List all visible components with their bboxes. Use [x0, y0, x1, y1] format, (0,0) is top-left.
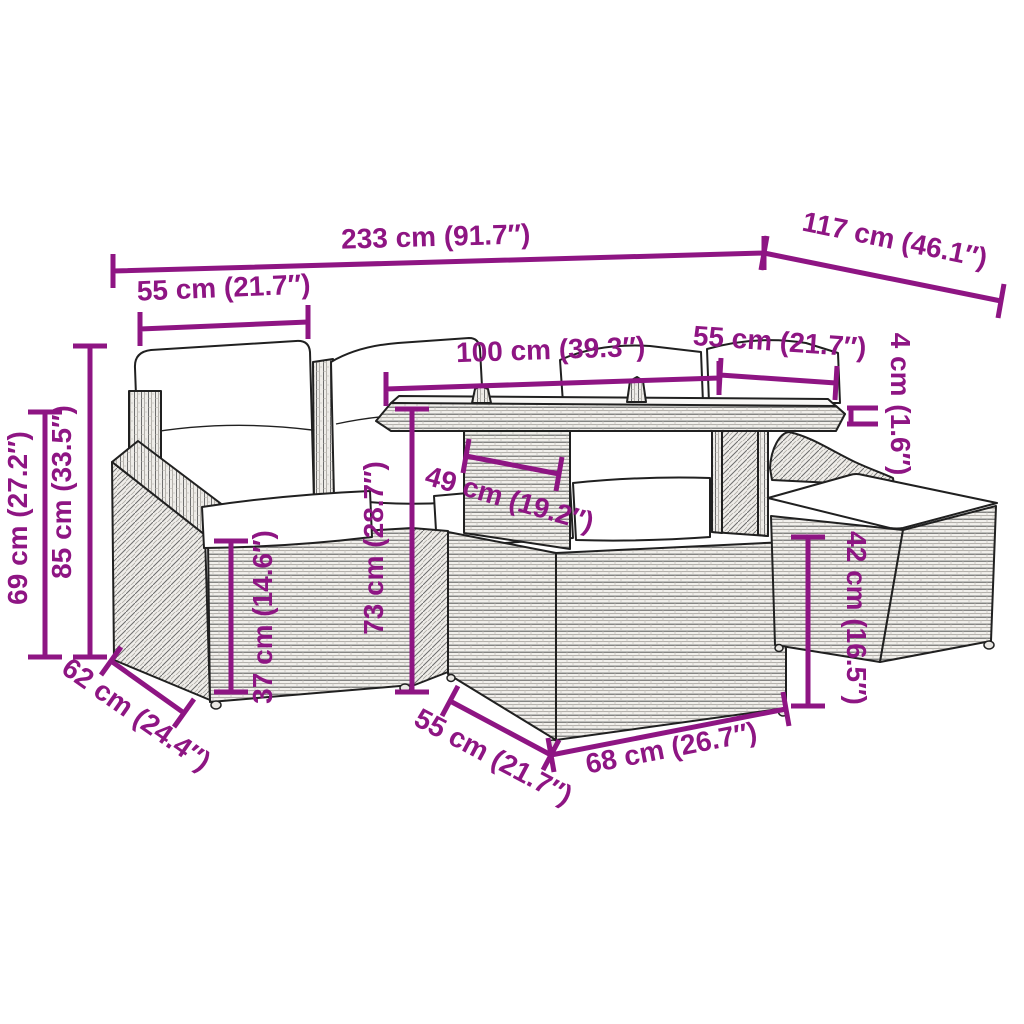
dimension-bracket-tabletop-thickness: [847, 408, 878, 424]
table-pedestal-right-edge-band-left: [712, 431, 722, 533]
footstool-foot-left: [775, 645, 783, 652]
dimension-label-overall-depth: 117 cm (46.1″): [800, 206, 990, 274]
dimension-label-armrest-height: 69 cm (27.2″): [2, 431, 33, 605]
dimension-line-total-height: [73, 346, 107, 657]
sofa-foot-left: [211, 701, 221, 709]
dimension-total-height: 85 cm (33.5″): [46, 346, 107, 657]
table-base-foot-left: [447, 675, 455, 682]
dimension-label-stool-height: 42 cm (16.5″): [841, 531, 872, 705]
dimension-line-seat-width: [140, 305, 308, 346]
table-base-front-right-face: [556, 542, 786, 740]
rear-seat-base: [412, 528, 448, 686]
table-pedestal-right-edge-band-right: [758, 431, 768, 536]
dimension-label-overall-width: 233 cm (91.7″): [341, 218, 531, 254]
dimension-seat-width: 55 cm (21.7″): [136, 268, 311, 346]
dimension-label-table-height: 73 cm (28.7″): [358, 461, 389, 635]
dimension-label-seat-width: 55 cm (21.7″): [136, 268, 311, 306]
tabletop-rattan-band: [376, 403, 845, 431]
dimension-label-table-length: 100 cm (39.3″): [456, 331, 646, 368]
dimension-label-tabletop-thickness: 4 cm (1.6″): [885, 333, 916, 476]
dimension-diagram: 233 cm (91.7″) 117 cm (46.1″) 55 cm (21.…: [0, 0, 1024, 1024]
footstool-foot-right: [984, 641, 994, 649]
dimension-label-seat-height: 37 cm (14.6″): [247, 530, 278, 704]
dimension-overall-depth: 117 cm (46.1″): [761, 206, 1004, 318]
dimension-label-total-height: 85 cm (33.5″): [46, 405, 77, 579]
footstool-section: [768, 432, 997, 662]
diagram-canvas: 233 cm (91.7″) 117 cm (46.1″) 55 cm (21.…: [0, 0, 1024, 1024]
